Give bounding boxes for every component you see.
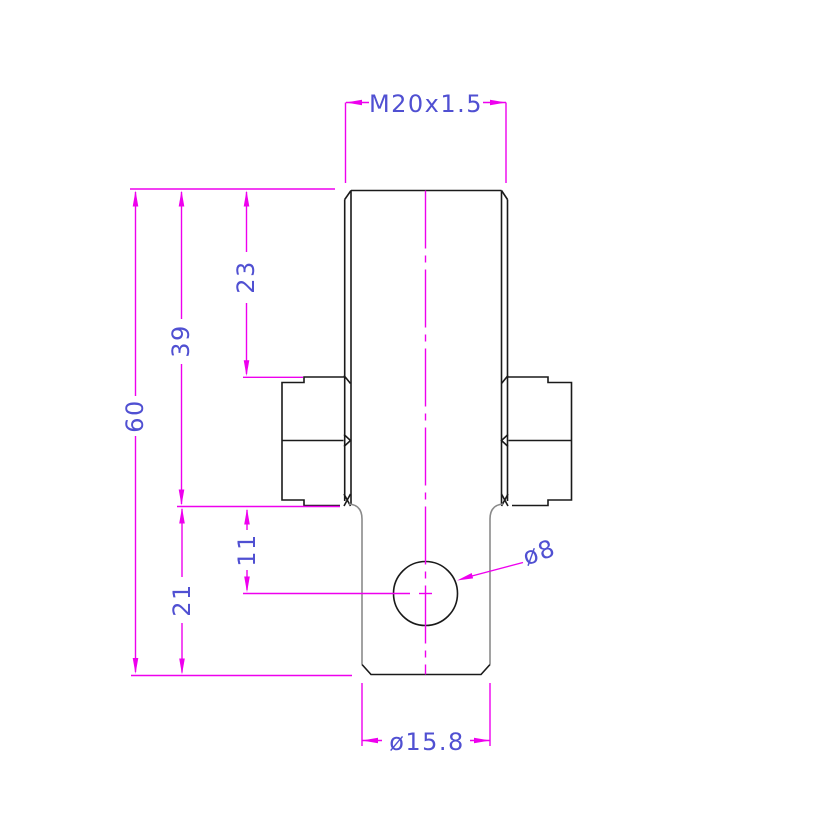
- dim-label-tail-diameter: ø15.8: [389, 728, 465, 756]
- dim-label-body-length: 39: [167, 324, 195, 358]
- extension-lines: [130, 103, 506, 747]
- fillet-right: [490, 504, 503, 519]
- hex-flat-right: [502, 376, 572, 507]
- top-left-chamfer: [345, 191, 351, 200]
- drawing-page: M20x1.5 60 39 23 21 11 ø15.8 ø8: [0, 0, 817, 830]
- dim-label-thread-length: 23: [232, 260, 260, 294]
- dim-label-hole-diameter: ø8: [519, 534, 560, 572]
- dim-label-hole-offset: 11: [233, 533, 261, 567]
- dim-label-tail-length: 21: [168, 583, 196, 617]
- centerlines: [419, 191, 432, 675]
- fillet-left: [349, 504, 362, 519]
- part-outline: [282, 191, 572, 675]
- hex-flat-left: [282, 376, 351, 507]
- dim-label-overall-length: 60: [121, 399, 149, 433]
- top-right-chamfer: [502, 191, 508, 200]
- technical-drawing-canvas: M20x1.5 60 39 23 21 11 ø15.8 ø8: [0, 0, 817, 830]
- dimension-lines: [133, 100, 523, 744]
- dim-label-thread: M20x1.5: [369, 90, 483, 118]
